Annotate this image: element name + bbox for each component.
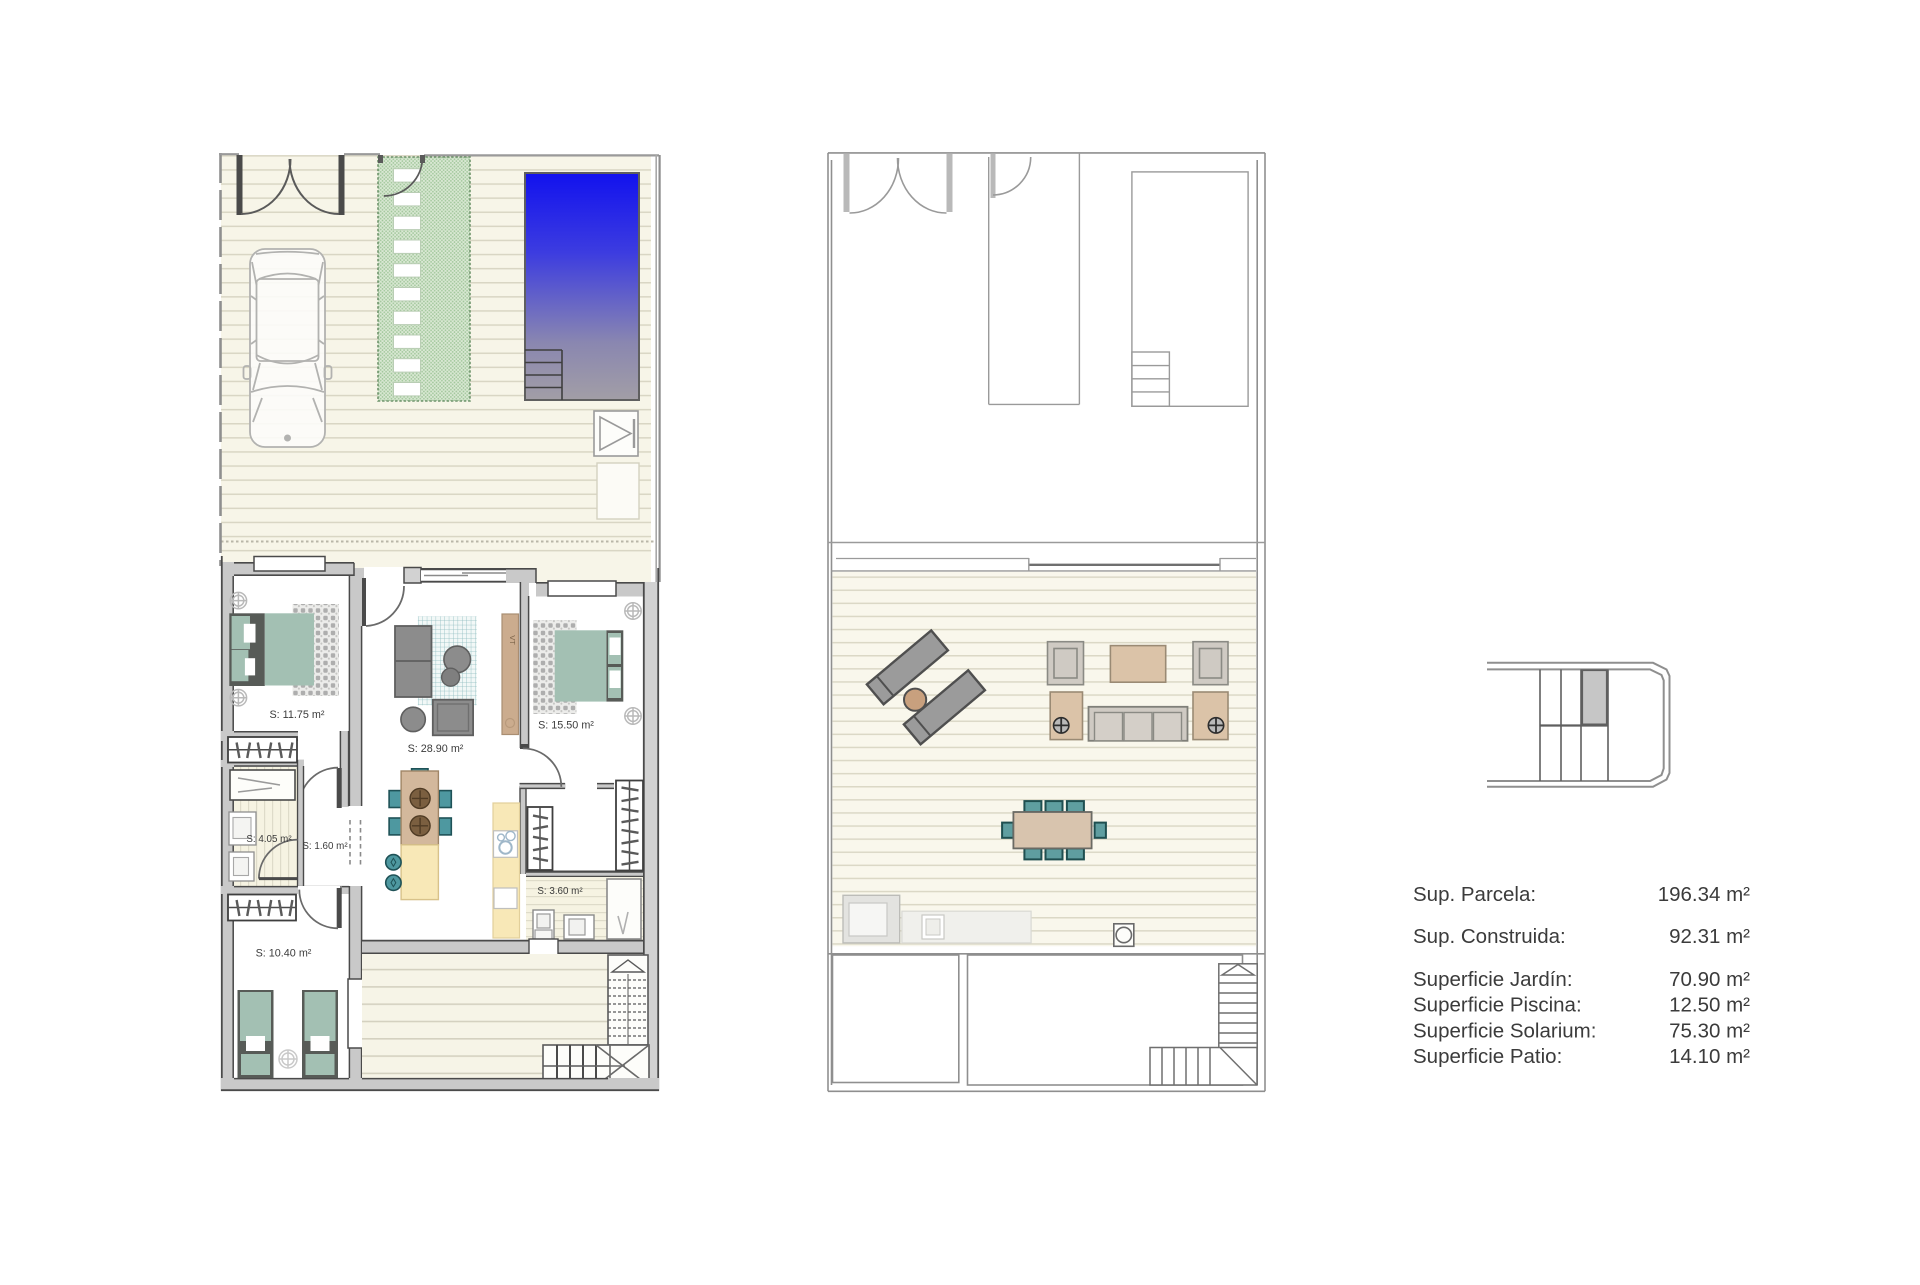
svg-text:VT: VT: [508, 635, 517, 645]
svg-text:14.10 m²: 14.10 m²: [1669, 1045, 1750, 1068]
svg-text:S: 28.90 m²: S: 28.90 m²: [408, 743, 464, 755]
svg-text:Superficie Solarium:: Superficie Solarium:: [1413, 1020, 1596, 1043]
svg-text:S: 11.75 m²: S: 11.75 m²: [269, 709, 324, 721]
svg-text:Sup. Construida:: Sup. Construida:: [1413, 925, 1566, 948]
svg-text:196.34 m²: 196.34 m²: [1658, 883, 1750, 906]
svg-text:Superficie Patio:: Superficie Patio:: [1413, 1045, 1562, 1068]
svg-text:S: 15.50 m²: S: 15.50 m²: [538, 720, 594, 732]
svg-text:S: 3.60 m²: S: 3.60 m²: [537, 886, 583, 897]
svg-text:S: 4.05 m²: S: 4.05 m²: [246, 834, 292, 845]
svg-text:S: 1.60 m²: S: 1.60 m²: [302, 841, 348, 852]
svg-text:75.30 m²: 75.30 m²: [1669, 1020, 1750, 1043]
svg-text:Sup. Parcela:: Sup. Parcela:: [1413, 883, 1536, 906]
svg-text:S: 10.40 m²: S: 10.40 m²: [256, 948, 312, 960]
svg-text:Superficie Piscina:: Superficie Piscina:: [1413, 994, 1582, 1017]
svg-text:92.31 m²: 92.31 m²: [1669, 925, 1750, 948]
svg-text:Superficie Jardín:: Superficie Jardín:: [1413, 968, 1573, 991]
svg-text:12.50 m²: 12.50 m²: [1669, 994, 1750, 1017]
svg-text:70.90 m²: 70.90 m²: [1669, 968, 1750, 991]
